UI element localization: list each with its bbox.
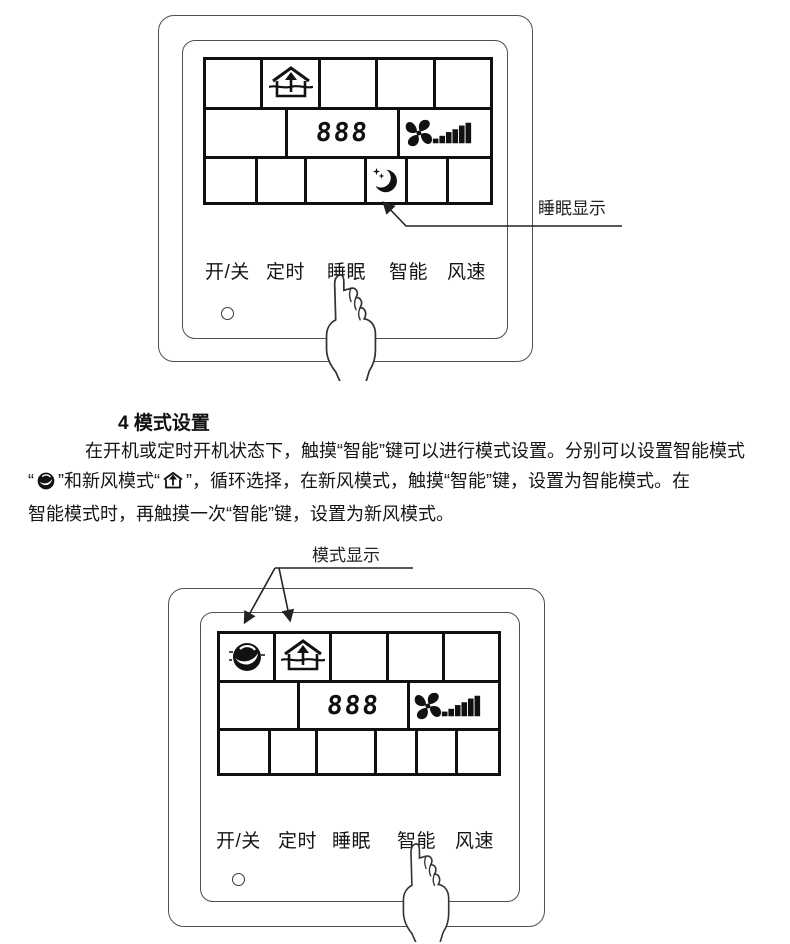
quote-open: “ <box>28 471 34 491</box>
seven-segment-value: 888 <box>326 691 382 721</box>
paragraph-line-2-mid: ”和新风模式“ <box>58 471 160 491</box>
lcd-segment-blank <box>436 60 490 107</box>
lcd-row-3 <box>220 731 498 773</box>
lcd-segment-blank <box>206 60 260 107</box>
bottom-lcd-display: 888 <box>217 631 501 776</box>
paragraph-line-2-rest: ”，循环选择，在新风模式，触摸“智能”键，设置为智能模式。在 <box>186 471 690 491</box>
lcd-segment-blank <box>206 110 285 156</box>
lcd-segment-blank <box>332 634 385 680</box>
manual-page: 888 <box>0 0 790 944</box>
lcd-segment-blank <box>271 731 315 773</box>
lcd-segment-blank <box>321 60 375 107</box>
lcd-segment-blank <box>206 159 255 202</box>
lcd-row-2: 888 <box>206 110 490 156</box>
timer-key[interactable]: 定时 <box>278 826 317 853</box>
sleep-key[interactable]: 睡眠 <box>332 826 371 853</box>
lcd-segment-blank <box>378 60 432 107</box>
mode-callout-arrows <box>228 560 428 634</box>
power-key[interactable]: 开/关 <box>205 257 250 284</box>
smart-key[interactable]: 智能 <box>389 257 428 284</box>
power-key[interactable]: 开/关 <box>216 826 261 853</box>
lcd-segment-blank <box>258 159 303 202</box>
section-heading: 4 模式设置 <box>118 408 210 435</box>
lcd-row-1 <box>220 634 498 680</box>
pointing-hand-icon <box>314 273 390 381</box>
sleep-callout-arrow <box>370 190 630 236</box>
lcd-segment-blank <box>418 731 455 773</box>
timer-key[interactable]: 定时 <box>266 257 305 284</box>
paragraph-line-3: 智能模式时，再触摸一次“智能”键，设置为新风模式。 <box>28 500 780 530</box>
lcd-segment-blank <box>458 731 498 773</box>
lcd-row-2: 888 <box>220 683 498 728</box>
fresh-air-mode-inline-icon <box>162 471 184 501</box>
lcd-segment-blank <box>377 731 415 773</box>
indicator-led <box>232 873 245 886</box>
seven-segment-value: 888 <box>315 118 371 148</box>
smart-mode-inline-icon <box>36 471 56 501</box>
fan-speed-icon <box>400 110 490 156</box>
lcd-segment-blank <box>389 634 442 680</box>
paragraph-line-2: “”和新风模式“”，循环选择，在新风模式，触摸“智能”键，设置为智能模式。在 <box>28 467 780 501</box>
fan-speed-key[interactable]: 风速 <box>447 257 486 284</box>
lcd-segment-blank <box>318 731 374 773</box>
paragraph-line-1: 在开机或定时开机状态下，触摸“智能”键可以进行模式设置。分别可以设置智能模式 <box>28 437 780 467</box>
smart-mode-icon <box>220 634 273 680</box>
fresh-air-mode-icon <box>263 60 317 107</box>
lcd-segment-blank <box>220 731 268 773</box>
section-paragraph: 在开机或定时开机状态下，触摸“智能”键可以进行模式设置。分别可以设置智能模式 “… <box>28 437 780 530</box>
temperature-display: 888 <box>288 110 397 156</box>
temperature-display: 888 <box>300 683 407 728</box>
lcd-segment-blank <box>307 159 364 202</box>
pointing-hand-icon <box>393 842 461 942</box>
top-lcd-display: 888 <box>203 57 493 205</box>
indicator-led <box>221 307 234 320</box>
lcd-row-1 <box>206 60 490 107</box>
lcd-segment-blank <box>445 634 498 680</box>
lcd-segment-blank <box>220 683 297 728</box>
fresh-air-mode-icon <box>276 634 329 680</box>
fan-speed-icon <box>410 683 498 728</box>
